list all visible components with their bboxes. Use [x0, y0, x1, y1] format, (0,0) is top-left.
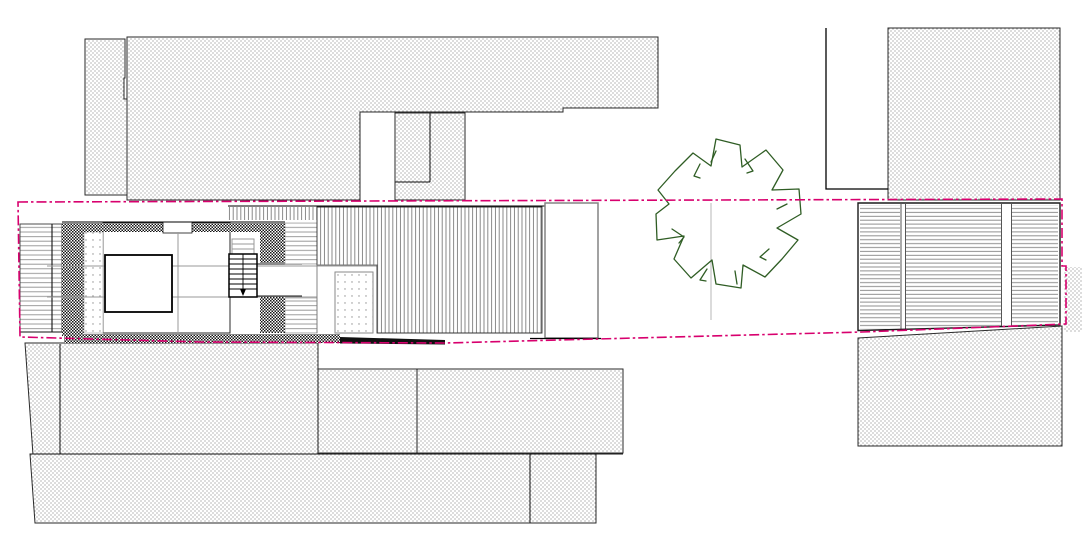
garage-east	[858, 203, 1060, 331]
neighbor-northwest-wing	[85, 39, 128, 195]
gravel-strip	[84, 232, 103, 333]
east-plank-deck-upper	[285, 223, 317, 264]
roof-stripe-band	[228, 207, 317, 220]
checker-wall-mid-lower	[260, 297, 285, 333]
garage-bay-3	[1012, 205, 1058, 326]
central-stair	[229, 239, 257, 297]
neighbor-south-a	[25, 343, 318, 455]
neighbor-south-c	[30, 454, 596, 523]
site-plan-canvas	[0, 0, 1082, 540]
neighbor-southeast-block	[858, 326, 1062, 446]
wall-opening	[163, 222, 192, 233]
neighbor-south-b	[318, 369, 623, 453]
checker-wall-mid-upper	[260, 223, 285, 263]
dotted-patio	[335, 272, 373, 333]
inner-room	[105, 255, 172, 312]
west-terrace-deck	[20, 224, 62, 332]
east-white-room	[545, 203, 598, 338]
garage-bay-2	[906, 205, 1001, 328]
east-plank-deck-lower	[285, 298, 317, 333]
garage-bay-1	[860, 205, 900, 329]
stair-upper-flight	[232, 239, 254, 254]
checker-wall-west	[62, 224, 84, 336]
neighbor-northeast-block	[888, 28, 1060, 200]
